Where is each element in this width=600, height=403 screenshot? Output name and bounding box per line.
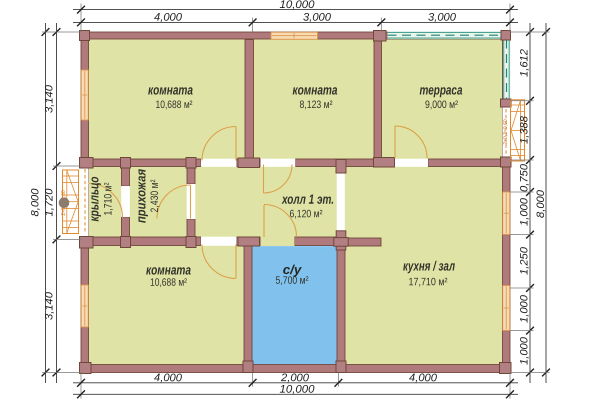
svg-text:комната: комната [148,82,193,97]
svg-text:1,720: 1,720 [44,188,56,217]
svg-text:4,000: 4,000 [154,12,183,24]
svg-text:3,000: 3,000 [428,12,457,24]
svg-text:5,700 м²: 5,700 м² [275,275,308,287]
svg-text:17,710 м²: 17,710 м² [408,276,447,288]
svg-text:3,000: 3,000 [303,12,332,24]
svg-text:10,688 м²: 10,688 м² [155,99,192,111]
svg-text:крыльцо: крыльцо [87,176,102,221]
svg-text:0,750: 0,750 [519,163,531,192]
svg-text:1,000: 1,000 [519,197,531,226]
svg-text:холл 1 эт.: холл 1 эт. [281,192,334,207]
svg-text:1,250: 1,250 [519,246,531,275]
svg-text:4,000: 4,000 [409,372,438,384]
svg-text:комната: комната [146,262,191,277]
svg-text:10,000: 10,000 [279,0,315,11]
svg-text:1,388: 1,388 [519,115,531,144]
svg-text:2×0,3=0,60: 2×0,3=0,60 [503,119,509,145]
svg-text:6,120 м²: 6,120 м² [289,208,322,220]
svg-text:терраса: терраса [419,82,462,97]
svg-text:8,123 м²: 8,123 м² [299,99,332,111]
svg-text:10,688 м²: 10,688 м² [150,277,187,289]
svg-text:4,000: 4,000 [154,372,183,384]
svg-text:1,710 м²: 1,710 м² [103,182,115,215]
svg-text:3,140: 3,140 [44,84,56,113]
svg-text:кухня / зал: кухня / зал [403,258,455,273]
svg-text:3,140: 3,140 [44,291,56,320]
svg-text:прихожая: прихожая [134,169,149,223]
svg-text:10,000: 10,000 [279,384,315,396]
svg-text:1,612: 1,612 [519,49,531,77]
svg-text:8,000: 8,000 [535,189,547,218]
svg-text:1,000: 1,000 [519,336,531,365]
svg-text:9,000 м²: 9,000 м² [425,99,458,111]
svg-text:1,000: 1,000 [519,294,531,323]
svg-text:2,000: 2,000 [280,372,310,384]
svg-text:комната: комната [292,82,337,97]
svg-text:8,000: 8,000 [30,188,42,217]
svg-text:2,430 м²: 2,430 м² [149,179,161,212]
